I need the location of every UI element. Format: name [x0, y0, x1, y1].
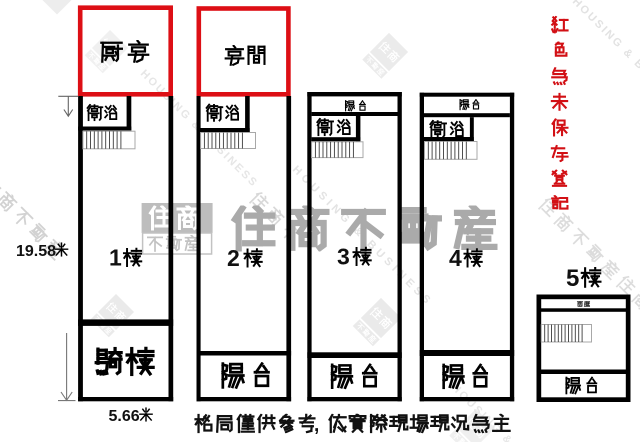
svg-text:3: 3: [337, 244, 350, 270]
svg-text:,: ,: [314, 415, 319, 436]
svg-text:2: 2: [227, 245, 240, 271]
svg-text:19.58: 19.58: [16, 243, 56, 260]
svg-text:5.66: 5.66: [109, 408, 140, 425]
svg-text:HOUSING & BUSINESS: HOUSING & BUSINESS: [570, 0, 640, 118]
svg-text:4: 4: [449, 245, 462, 271]
svg-text:1: 1: [109, 245, 122, 271]
svg-text:5: 5: [566, 265, 579, 292]
